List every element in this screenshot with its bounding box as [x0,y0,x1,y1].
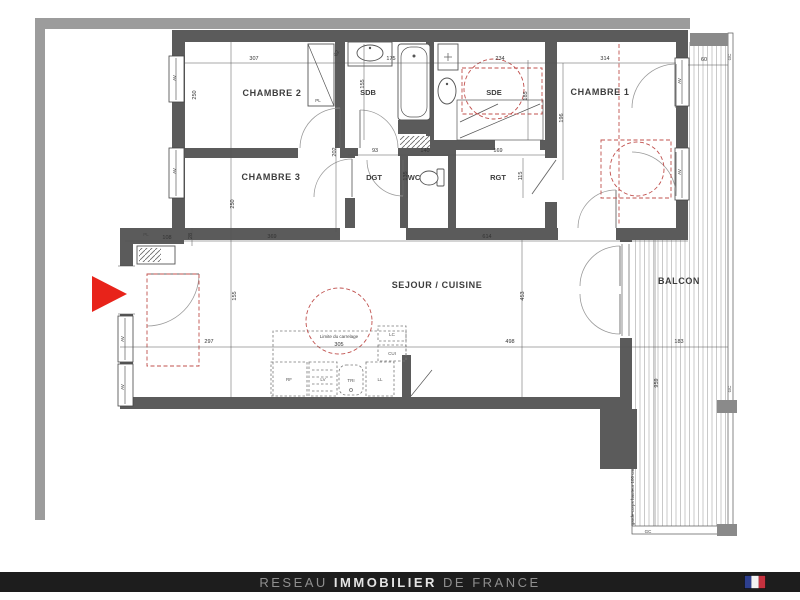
dim-wc-width: 140 [420,148,429,154]
room-label-chambre1: CHAMBRE 1 [571,87,630,97]
sde-washbasin [438,78,456,104]
label-gc-3: GC [645,529,653,534]
room-label-chambre3: CHAMBRE 3 [242,172,301,182]
label-av-6: AV [677,169,682,175]
dim-balcony-width: 183 [674,339,683,345]
dim-closet-depth: 28 [188,233,194,239]
label-av-2: AV [172,168,177,174]
room-label-sdb: SDB [360,88,376,97]
dim-sde-width: 234 [495,56,504,62]
floorplan-drawing: 307 62 155 175 234 314 60 250 250 202 93… [0,0,800,600]
french-flag-icon [744,575,766,589]
label-av-5: AV [677,78,682,84]
dim-dgt-width: 93 [372,148,378,154]
balcony-railing [728,33,733,535]
label-pl-chambre2: PL [315,98,321,103]
tiling-limit-line [273,331,406,396]
room-label-balcon: BALCON [658,276,700,286]
label-gc-2: GC [727,385,732,393]
label-rf: RF [286,377,292,382]
dim-sejour-width: 498 [505,339,514,345]
room-label-sde: SDE [486,88,501,97]
label-av-4: AV [120,384,125,390]
label-pl-entrance: PL [143,232,149,237]
label-ll: LL [377,377,383,382]
label-av-3: AV [120,336,125,342]
dim-ch3-height: 250 [230,199,236,208]
room-label-chambre2: CHAMBRE 2 [243,88,302,98]
label-tri: TRI [347,378,354,383]
dim-tiling-width: 305 [334,342,343,348]
dim-balcony-height: 959 [654,378,660,387]
dim-sejour-height: 453 [520,291,526,300]
dim-ch2-height: 250 [192,90,198,99]
dim-ch1-height: 196 [559,113,565,122]
room-label-wc: WC [408,173,421,182]
label-cui: CUI [388,351,396,356]
footer-bar: RESEAU IMMOBILIER DE FRANCE [0,572,800,592]
brand-prefix: RESEAU [259,575,334,590]
brand-suffix: DE FRANCE [437,575,541,590]
dim-tub: 175 [386,56,395,62]
dim-hall-height: 202 [332,147,338,156]
toilet-bowl [420,171,438,185]
dim-ch1-width: 314 [600,56,609,62]
label-limite-carrelage: Limite du carrelage [320,334,359,339]
dim-closet-width: 108 [162,235,171,241]
room-label-sejour: SEJOUR / CUISINE [392,280,483,290]
dim-rgt-width: 169 [493,148,502,154]
wc-fixtures [420,169,444,186]
label-lc: LC [389,332,396,337]
dim-sde-height: 185 [523,91,529,100]
dim-hall-width: 614 [482,234,491,240]
dim-ch3-width: 369 [267,234,276,240]
label-av-1: AV [172,75,177,81]
room-label-dgt: DGT [366,173,382,182]
label-balcony-note: garde-corps hauteur 100 cm [630,468,635,525]
brand-main: IMMOBILIER [334,575,437,590]
label-gc-1: GC [727,53,732,61]
dim-ch2-width: 307 [249,56,258,62]
dim-entry-width: 297 [204,339,213,345]
floorplan-page: 307 62 155 175 234 314 60 250 250 202 93… [0,0,800,600]
dim-balcony-top: 60 [701,57,707,63]
dim-rgt-height: 115 [518,172,524,181]
dim-entry-height: 155 [232,291,238,300]
label-lv: LV [320,377,325,382]
room-label-rgt: RGT [490,173,506,182]
